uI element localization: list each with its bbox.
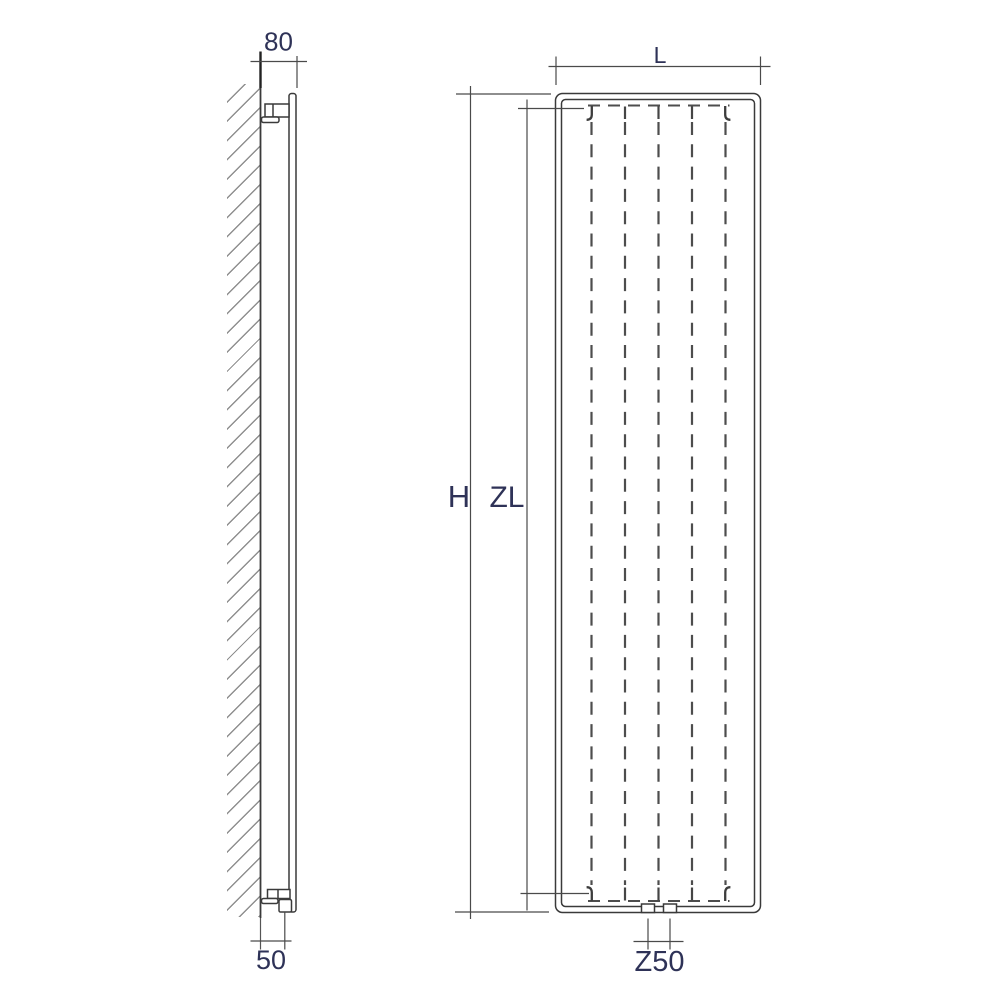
height-label: H <box>448 479 470 514</box>
dimension-pipe-centres-Z50: Z50 <box>634 919 685 979</box>
element-length-label: ZL <box>489 481 524 514</box>
mounting-bracket-top <box>262 104 290 123</box>
radiator-panel-side <box>289 94 296 913</box>
pipe-connection-side <box>279 900 292 913</box>
radiator-technical-drawing: 80 50 <box>0 0 1000 1000</box>
drawing-svg: 80 50 <box>0 0 1000 1000</box>
pipe-centres-label: Z50 <box>635 946 685 978</box>
mounting-bracket-bottom <box>262 890 292 913</box>
dimension-depth-80: 80 <box>251 27 308 89</box>
wall-distance-label: 50 <box>256 945 286 975</box>
width-label: L <box>654 42 667 68</box>
side-view: 80 50 <box>251 27 308 976</box>
dimension-width-L: L <box>549 42 771 85</box>
front-view: L H ZL Z50 <box>448 42 771 978</box>
dimension-wall-distance-50: 50 <box>251 941 292 975</box>
depth-label: 80 <box>264 27 293 57</box>
